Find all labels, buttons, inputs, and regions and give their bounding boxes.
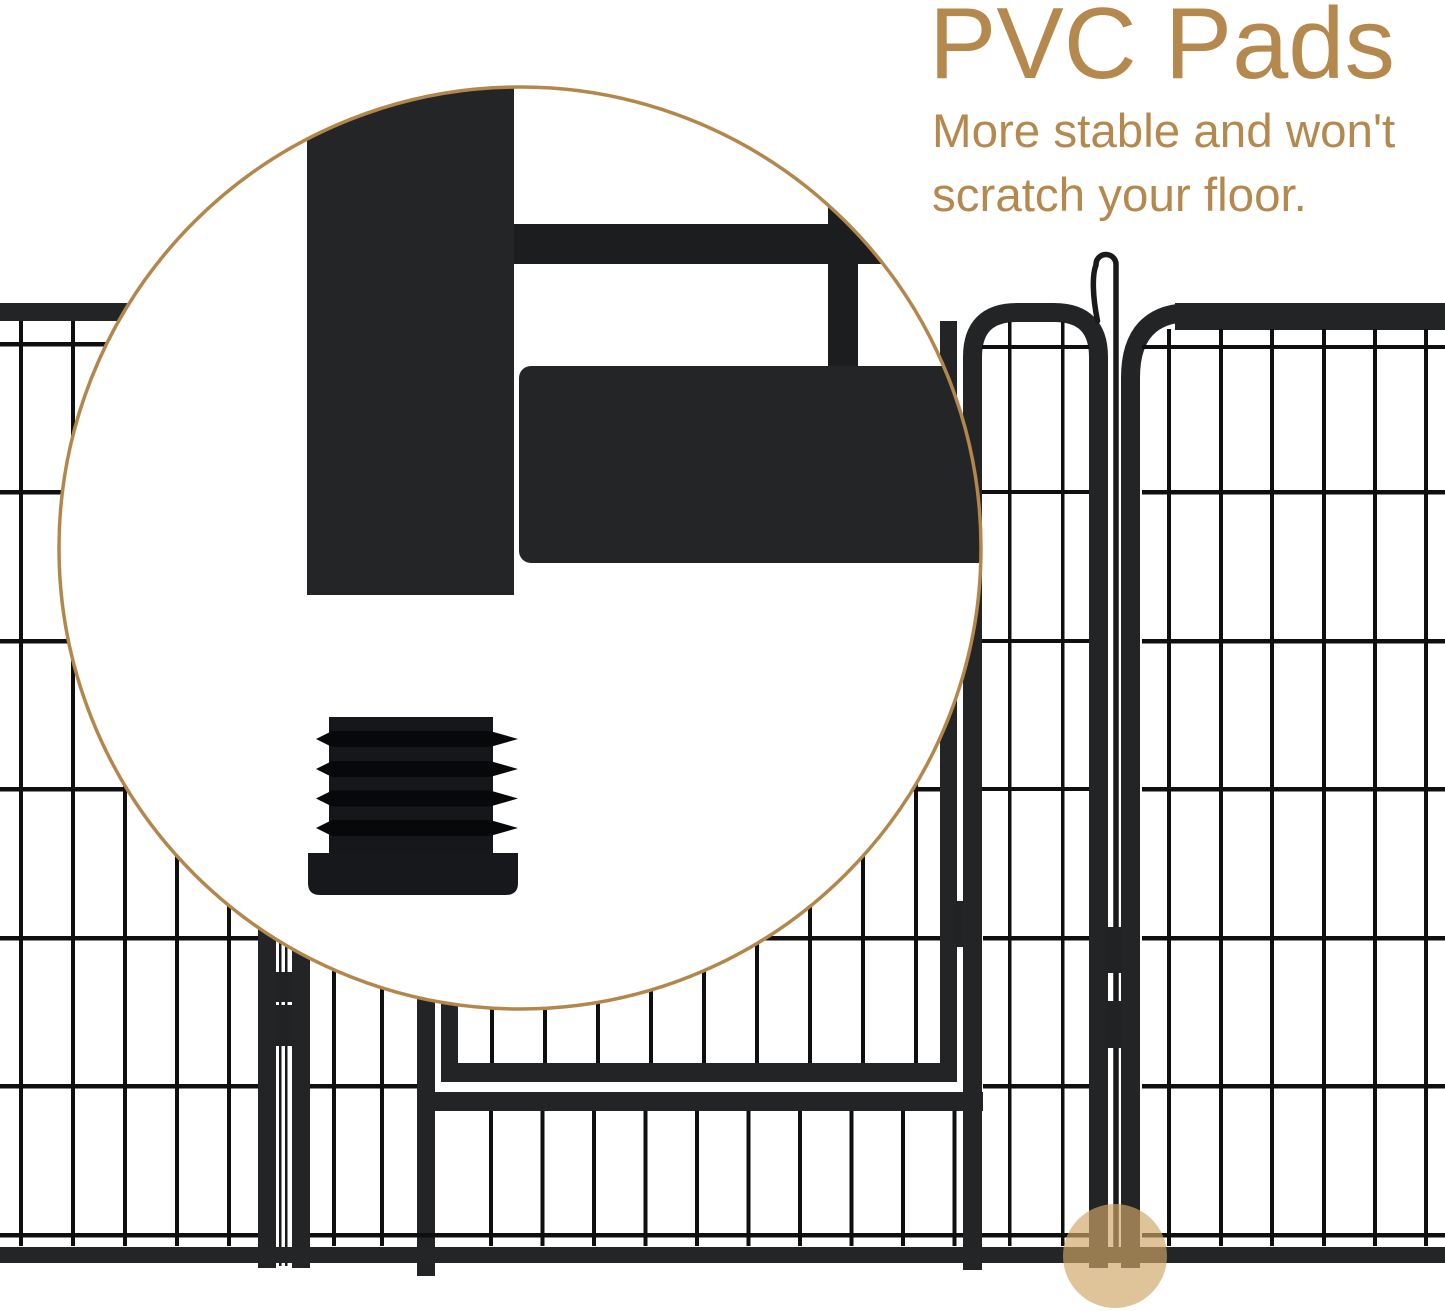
svg-text:PVC Pads: PVC Pads: [929, 0, 1395, 100]
svg-text:More stable and won't: More stable and won't: [932, 105, 1395, 158]
svg-text:scratch your floor.: scratch your floor.: [932, 169, 1307, 222]
